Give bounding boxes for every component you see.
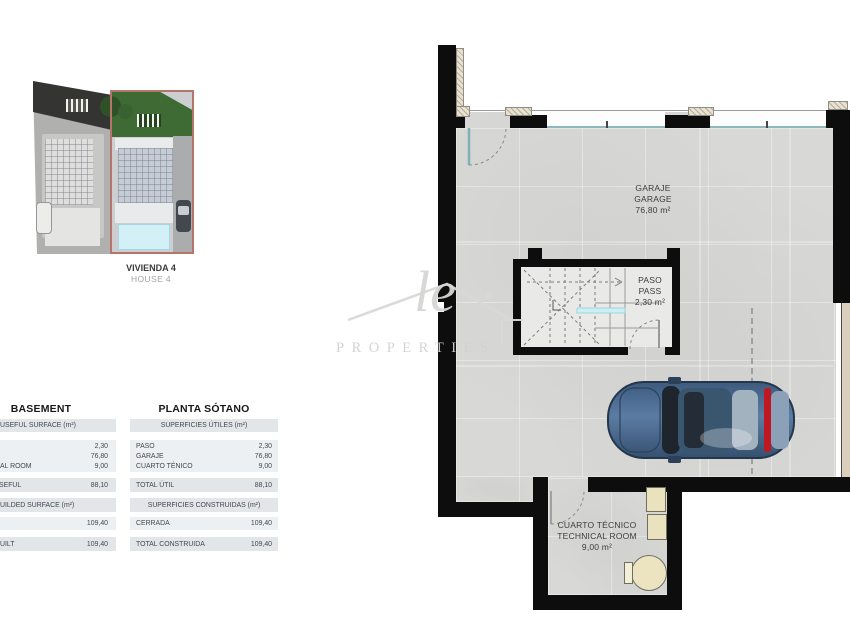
table-row: AL ROOM 9,00 (0, 461, 116, 471)
stair-glass-strip (577, 308, 625, 313)
table-row: CUARTO TÉNICO 9,00 (130, 461, 278, 471)
stair-wall-left (513, 259, 521, 355)
table-row: GARAJE 76,80 (130, 451, 278, 461)
wall-hatch (505, 107, 532, 116)
stair-door-swing (630, 320, 659, 349)
table-rows: PASO 2,30 GARAJE 76,80 CUARTO TÉNICO 9,0… (130, 440, 278, 472)
garage-label: GARAJE GARAGE 76,80 m² (603, 183, 703, 216)
wall-left-notch (438, 302, 444, 312)
plot-left-car (36, 202, 52, 234)
water-tank-handle (624, 562, 633, 584)
entry-door-swing (469, 128, 506, 165)
thumbnail-title: VIVIENDA 4 (106, 263, 196, 273)
table-row: 109,40 (0, 517, 116, 530)
stair-wall-stub (528, 248, 542, 259)
wall-hatch (456, 106, 470, 117)
wall-corner-entry (455, 117, 465, 128)
car-top-view (606, 376, 798, 464)
tech-room-wall-left (533, 477, 548, 610)
table-row: 76,80 (0, 451, 116, 461)
equipment-box-small (646, 487, 666, 512)
wall-bottom-left (438, 502, 548, 517)
wall-hatch (828, 101, 848, 110)
wall-pier (510, 115, 547, 128)
plot-left-pergola (66, 99, 88, 112)
wall-stub-top-left (438, 45, 456, 115)
plot-highlight-outline (110, 90, 194, 254)
stair-wall-bottom (513, 347, 628, 355)
table-total-row: TOTAL ÚTIL 88,10 (130, 478, 278, 492)
table-planta-sotano: PLANTA SÓTANO SUPERFICIES ÚTILES (m²) PA… (130, 403, 278, 551)
wall-bottom-right (588, 477, 850, 492)
water-tank (631, 555, 667, 591)
table-section-header: UILDED SURFACE (m²) (0, 498, 116, 512)
brochure-page: VIVIENDA 4 HOUSE 4 BASEMENT USEFUL SURFA… (0, 0, 850, 620)
plot-left-terrace (45, 208, 100, 246)
wall-right (833, 112, 850, 303)
table-section-header: USEFUL SURFACE (m²) (0, 419, 116, 432)
table-title: PLANTA SÓTANO (130, 403, 278, 415)
thumbnail-subtitle: HOUSE 4 (106, 274, 196, 284)
wall-hatch (688, 107, 714, 116)
site-plan-thumbnail: VIVIENDA 4 HOUSE 4 (30, 78, 195, 288)
table-row: CERRADA 109,40 (130, 517, 278, 530)
table-total-row: TOTAL CONSTRUIDA 109,40 (130, 537, 278, 551)
tech-room-wall-bottom (533, 595, 682, 610)
equipment-box-large (647, 514, 667, 540)
paso-label: PASO PASS 2,30 m² (615, 275, 685, 308)
table-basement: BASEMENT USEFUL SURFACE (m²) 2,30 76,80 … (0, 403, 116, 551)
technical-room-label: CUARTO TÉCNICO TECHNICAL ROOM 9,00 m² (547, 520, 647, 553)
wall-pier (665, 115, 710, 128)
table-total-row: UILT 109,40 (0, 537, 116, 551)
stair-wall-top (513, 259, 680, 267)
stair-wall-stub (667, 248, 680, 259)
tech-room-wall-right (667, 477, 682, 610)
table-section-header: SUPERFICIES CONSTRUIDAS (m²) (130, 498, 278, 512)
plot-left-roof (45, 139, 93, 205)
table-row: 2,30 (0, 441, 116, 451)
wall-hatch (456, 48, 464, 108)
table-title: BASEMENT (0, 403, 116, 415)
table-total-row: SEFUL 88,10 (0, 478, 116, 492)
table-section-header: SUPERFICIES ÚTILES (m²) (130, 419, 278, 432)
table-row: PASO 2,30 (130, 441, 278, 451)
wall-left (438, 112, 456, 517)
table-rows: 2,30 76,80 AL ROOM 9,00 (0, 440, 116, 472)
